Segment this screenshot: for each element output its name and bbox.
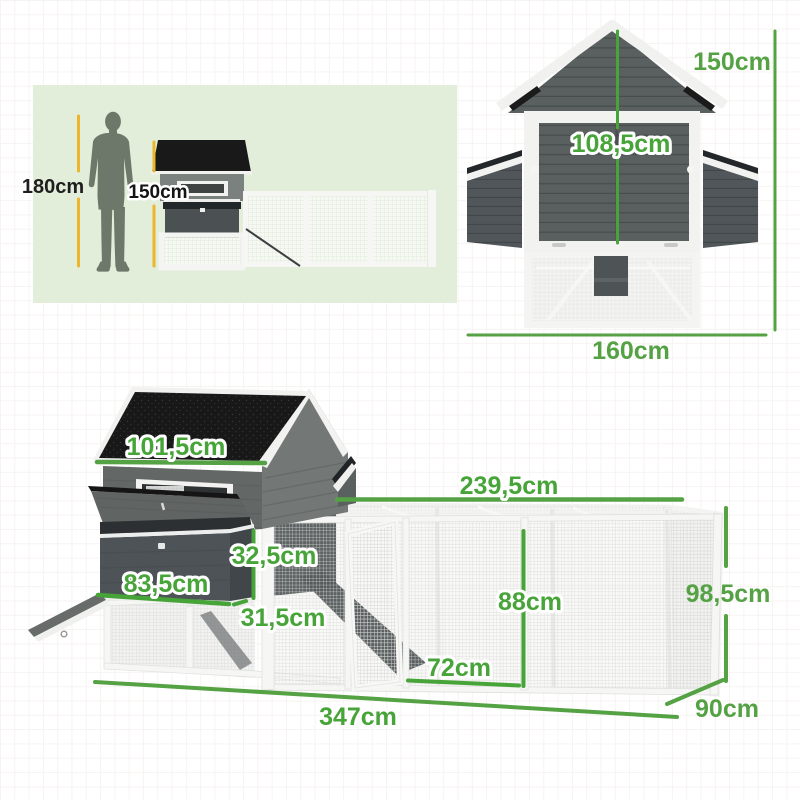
svg-text:150cm: 150cm: [128, 182, 187, 203]
svg-text:31,5cm: 31,5cm: [241, 604, 326, 632]
svg-text:32,5cm: 32,5cm: [232, 542, 317, 570]
svg-text:160cm: 160cm: [592, 337, 670, 365]
svg-text:108,5cm: 108,5cm: [572, 130, 671, 158]
svg-text:239,5cm: 239,5cm: [460, 472, 559, 500]
svg-text:72cm: 72cm: [427, 654, 491, 682]
svg-text:180cm: 180cm: [22, 176, 84, 198]
svg-text:90cm: 90cm: [695, 695, 759, 723]
svg-text:98,5cm: 98,5cm: [686, 580, 771, 608]
svg-text:150cm: 150cm: [693, 48, 771, 76]
svg-text:347cm: 347cm: [319, 703, 397, 731]
svg-text:83,5cm: 83,5cm: [124, 570, 209, 598]
svg-text:88cm: 88cm: [498, 588, 562, 616]
svg-text:101,5cm: 101,5cm: [127, 433, 226, 461]
